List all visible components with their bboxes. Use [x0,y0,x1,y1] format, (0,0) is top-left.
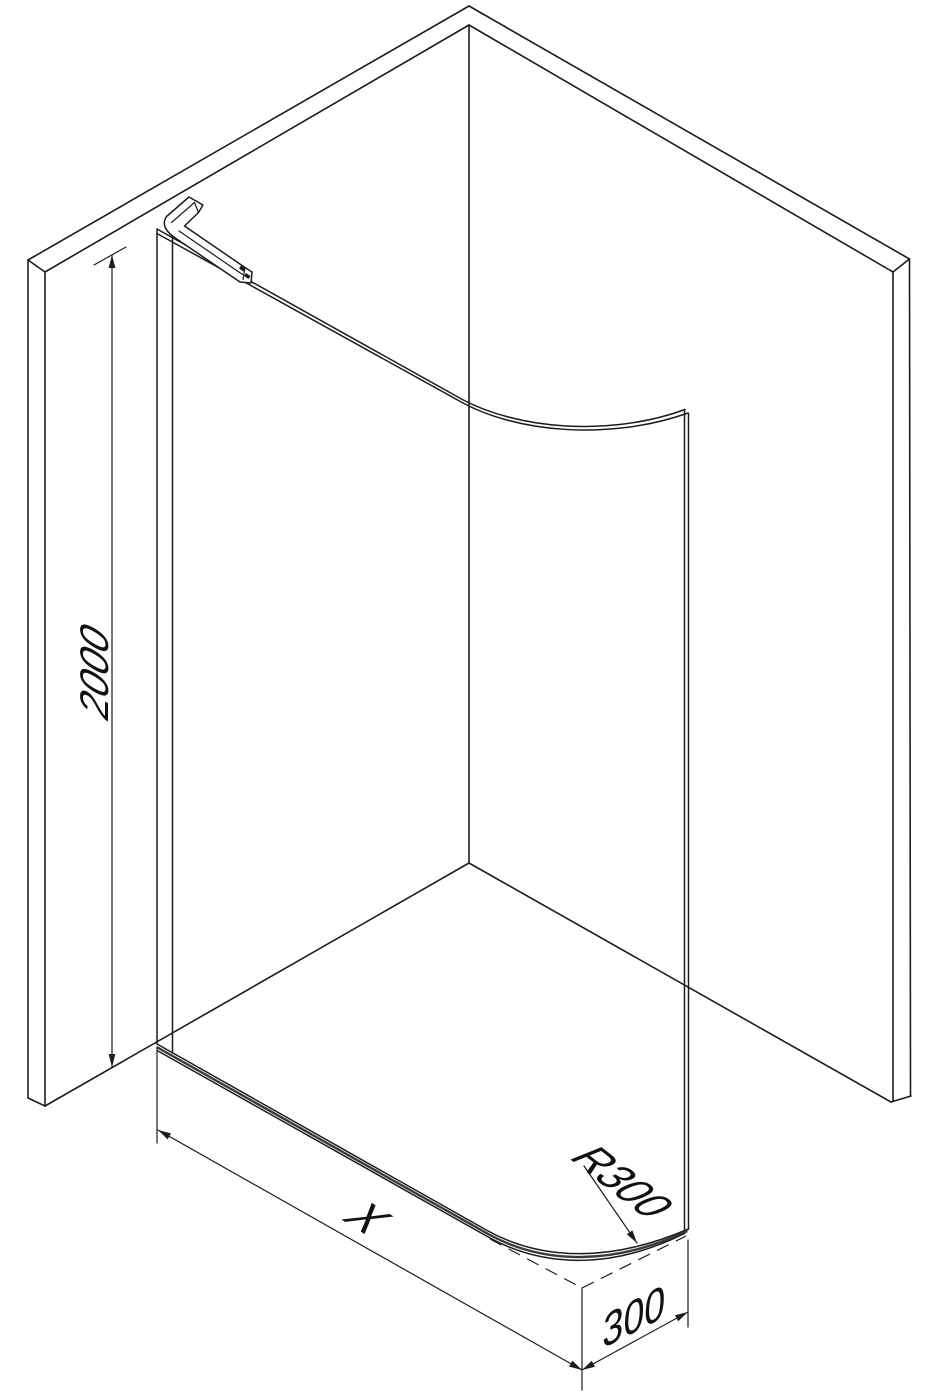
radius-label: R300 [558,1141,688,1223]
glass-panel [157,229,689,1260]
dimension-arrow-right [569,1361,582,1370]
height-dimension-label: 2000 [73,614,117,729]
dimension-arrow-up [109,255,116,268]
width-dimension-label: X [331,1196,405,1240]
radius-leader-arrow [627,1230,637,1243]
right-wall [469,6,911,1102]
technical-drawing-page: 2000 X 300 R300 [0,0,939,1391]
depth-dimension-label: 300 [601,1273,666,1359]
dimension-arrow-sw [582,1361,595,1370]
dimension-arrow-ne [675,1312,688,1321]
width-dimension: X [157,1048,582,1370]
dimension-arrow-down [109,1054,116,1067]
support-bracket [164,197,252,283]
left-wall [28,6,469,1106]
shower-screen-diagram: 2000 X 300 R300 [0,0,939,1391]
radius-callout: R300 [558,1141,688,1243]
dimension-arrow-left [158,1130,171,1139]
depth-dimension: 300 [582,1240,688,1390]
height-dimension: 2000 [73,247,126,1067]
support-bracket-body [164,197,252,283]
